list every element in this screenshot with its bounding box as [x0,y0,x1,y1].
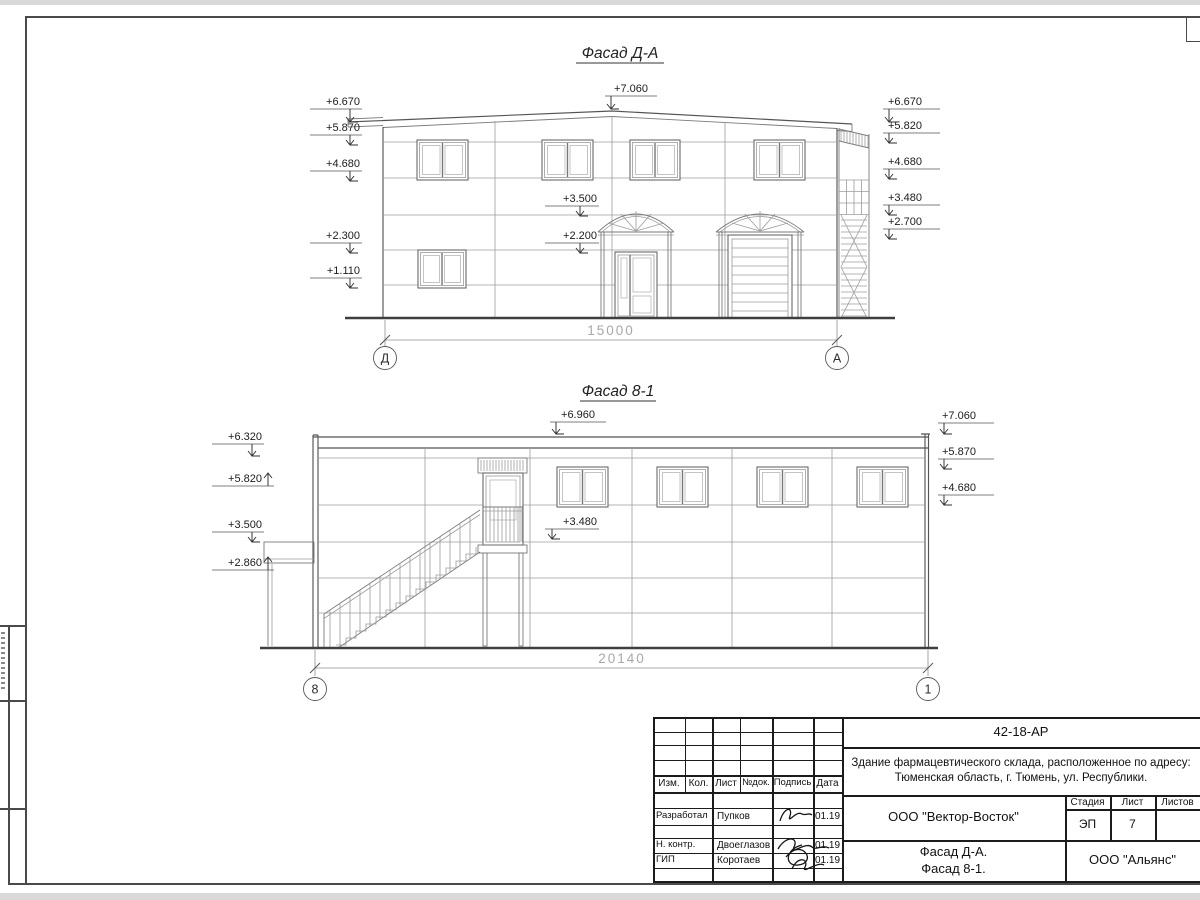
client-company: ООО "Альянс" [1065,840,1200,881]
elevation-marks-left: +6.670 +5.870 +4.680 +2.300 +1.110 [310,96,362,288]
sheet-value: 7 [1110,809,1155,840]
grid-line [653,868,842,869]
axis-marker-a: А [826,347,849,370]
windows-group [557,467,908,507]
elevation-mark: +2.300 [326,230,360,242]
frame-left-outer [8,625,10,883]
page-edge-bottom [0,893,1200,900]
col-sign: Подпись [772,775,813,792]
page-edge-top [0,0,1200,5]
name-gip: Коротаев [714,853,772,868]
facade-da-title: Фасад Д-А [582,45,659,62]
date-gip: 01.19 [813,853,842,868]
dimension-15000: 15000 [380,320,842,346]
drawing-title: Фасад Д-А. Фасад 8-1. [842,840,1065,881]
left-stamp-line [0,808,26,810]
garage-door [716,211,804,318]
elevation-mark: +4.680 [326,158,360,170]
doc-code: 42-18-АР [842,717,1200,747]
elevation-marks-middle: +3.500 +2.200 [545,193,599,253]
elevation-mark: +3.500 [563,193,597,205]
corner-code-box [1186,16,1200,42]
role-ncontrol: Н. контр. [653,838,712,853]
left-stamp-line [0,625,26,627]
dimension-value: 20140 [598,651,646,666]
title-block: Изм. Кол. Лист №док. Подпись Дата Разраб… [653,717,1200,883]
facade-81-title-group: Фасад 8-1 [580,383,656,401]
grid-line [653,760,842,761]
elevation-mark-top: +6.960 [550,409,606,434]
elevation-mark: +5.820 [228,473,262,485]
fire-escape-ladder [839,128,869,318]
axis-marker-1: 1 [917,678,940,701]
elevation-marks-left: +6.320 +5.820 +3.500 +2.860 [212,431,274,570]
roof [348,111,852,132]
elevation-mark: +2.700 [888,216,922,228]
elevation-mark: +6.960 [561,409,595,421]
elevation-mark: +1.110 [327,265,360,277]
grid-line [653,825,842,826]
col-date: Дата [813,775,842,792]
grid-line [653,881,1200,883]
elevation-mark: +5.870 [326,122,360,134]
name-developer: Пупков [714,808,772,825]
col-izm: Изм. [653,775,685,792]
elevation-mark: +4.680 [888,156,922,168]
facade-da-drawing: Фасад Д-А [240,30,1010,380]
entrance-door [598,211,674,318]
elevation-mark: +2.200 [563,230,597,242]
sheets-value [1155,809,1200,840]
elevation-marks-right: +7.060 +5.870 +4.680 [938,410,994,505]
stair [324,510,480,648]
porch [264,542,314,646]
elevation-mark: +2.860 [228,557,262,569]
svg-text:А: А [833,352,842,366]
grid-line [653,745,842,746]
designer-company: ООО "Вектор-Восток" [842,795,1065,840]
svg-text:Д: Д [381,352,390,366]
role-gip: ГИП [653,853,712,868]
col-list: Лист [712,775,740,792]
facade-da-title-group: Фасад Д-А [576,45,664,63]
facade-81-title: Фасад 8-1 [582,383,655,400]
elevation-mark: +5.870 [942,446,976,458]
wall-panels [313,434,930,648]
upper-door [478,458,527,646]
col-doc: №док. [740,775,772,792]
elevation-mark: +3.480 [563,516,597,528]
drawing-title-line1: Фасад Д-А. [920,844,987,861]
stage-value: ЭП [1065,809,1110,840]
frame-top [25,16,1200,18]
elevation-mark: +4.680 [942,482,976,494]
elevation-mark: +3.480 [888,192,922,204]
left-stamp-text-sliver [1,632,5,690]
left-stamp-line [0,700,26,702]
elevation-marks-right: +6.670 +5.820 +4.680 +3.480 +2.700 [883,96,940,239]
elevation-mark: +7.060 [614,83,648,95]
elevation-mark: +6.320 [228,431,262,443]
grid-line [653,792,842,794]
date-developer: 01.19 [813,808,842,825]
elevation-mark-top: +7.060 [605,83,657,109]
dimension-value: 15000 [587,323,635,338]
date-ncontrol: 01.19 [813,838,842,853]
stage-label: Стадия [1065,795,1110,809]
svg-text:8: 8 [312,683,319,697]
elevation-mark: +6.670 [326,96,360,108]
object-line2: Тюменская область, г. Тюмень, ул. Респуб… [895,771,1148,786]
svg-text:1: 1 [925,683,932,697]
object-description: Здание фармацевтического склада, располо… [842,747,1200,795]
name-ncontrol: Двоеглазов [714,838,772,853]
axis-marker-8: 8 [304,678,327,701]
sheets-label: Листов [1155,795,1200,809]
role-developer: Разработал [653,808,712,825]
elevation-mark: +3.500 [228,519,262,531]
drawing-title-line2: Фасад 8-1. [921,861,985,878]
frame-left [25,16,27,884]
frame-bottom [8,883,1200,885]
elevation-mark: +7.060 [942,410,976,422]
elevation-marks-middle: +3.480 [545,516,599,539]
grid-line [653,732,842,733]
facade-81-drawing: Фасад 8-1 [190,378,1010,708]
signature-developer [780,809,812,821]
dimension-20140: 20140 [310,650,933,676]
axis-marker-d: Д [374,347,397,370]
object-line1: Здание фармацевтического склада, располо… [851,756,1190,771]
col-kol: Кол. [685,775,712,792]
elevation-mark: +6.670 [888,96,922,108]
drawing-sheet: Фасад Д-А [0,0,1200,900]
sheet-label: Лист [1110,795,1155,809]
elevation-mark: +5.820 [888,120,922,132]
grid-line [772,717,774,883]
